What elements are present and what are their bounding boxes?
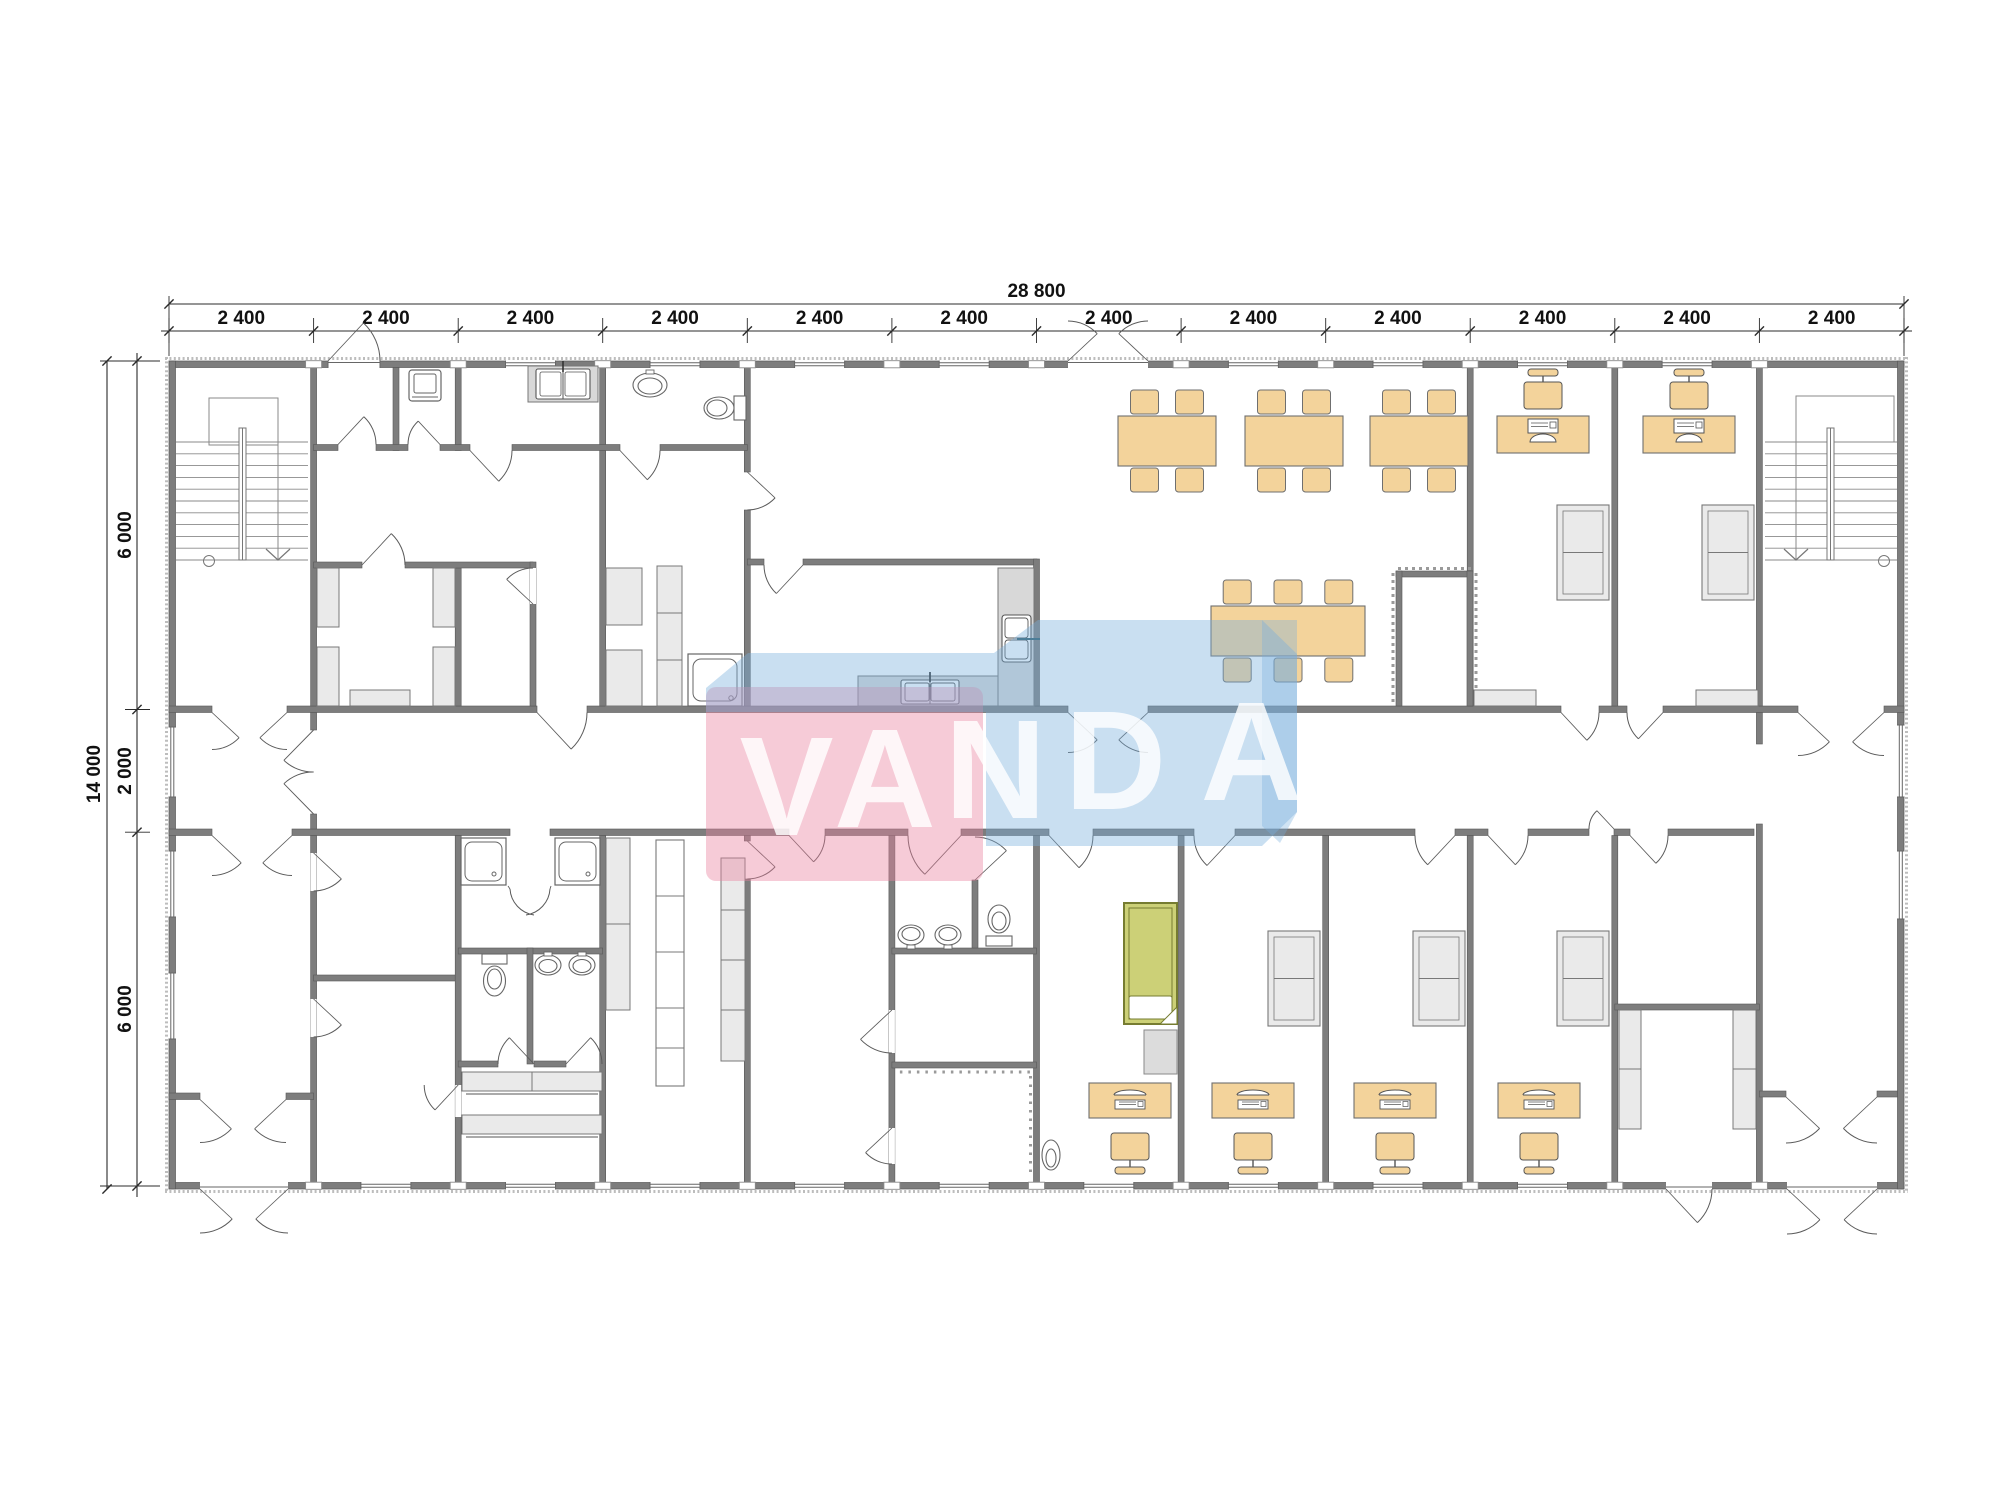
- svg-text:2 400: 2 400: [362, 308, 410, 329]
- svg-text:2 400: 2 400: [796, 308, 844, 329]
- svg-text:2 400: 2 400: [651, 308, 699, 329]
- svg-text:2 400: 2 400: [1808, 308, 1856, 329]
- svg-text:6 000: 6 000: [115, 511, 136, 559]
- svg-text:2 000: 2 000: [115, 747, 136, 795]
- svg-text:2 400: 2 400: [507, 308, 555, 329]
- svg-text:2 400: 2 400: [1230, 308, 1278, 329]
- svg-text:28 800: 28 800: [1007, 281, 1065, 302]
- svg-text:14 000: 14 000: [84, 745, 105, 803]
- svg-text:2 400: 2 400: [1085, 308, 1133, 329]
- svg-text:6 000: 6 000: [115, 985, 136, 1033]
- svg-text:2 400: 2 400: [940, 308, 988, 329]
- svg-text:2 400: 2 400: [218, 308, 266, 329]
- svg-text:2 400: 2 400: [1374, 308, 1422, 329]
- svg-text:2 400: 2 400: [1519, 308, 1567, 329]
- svg-text:2 400: 2 400: [1663, 308, 1711, 329]
